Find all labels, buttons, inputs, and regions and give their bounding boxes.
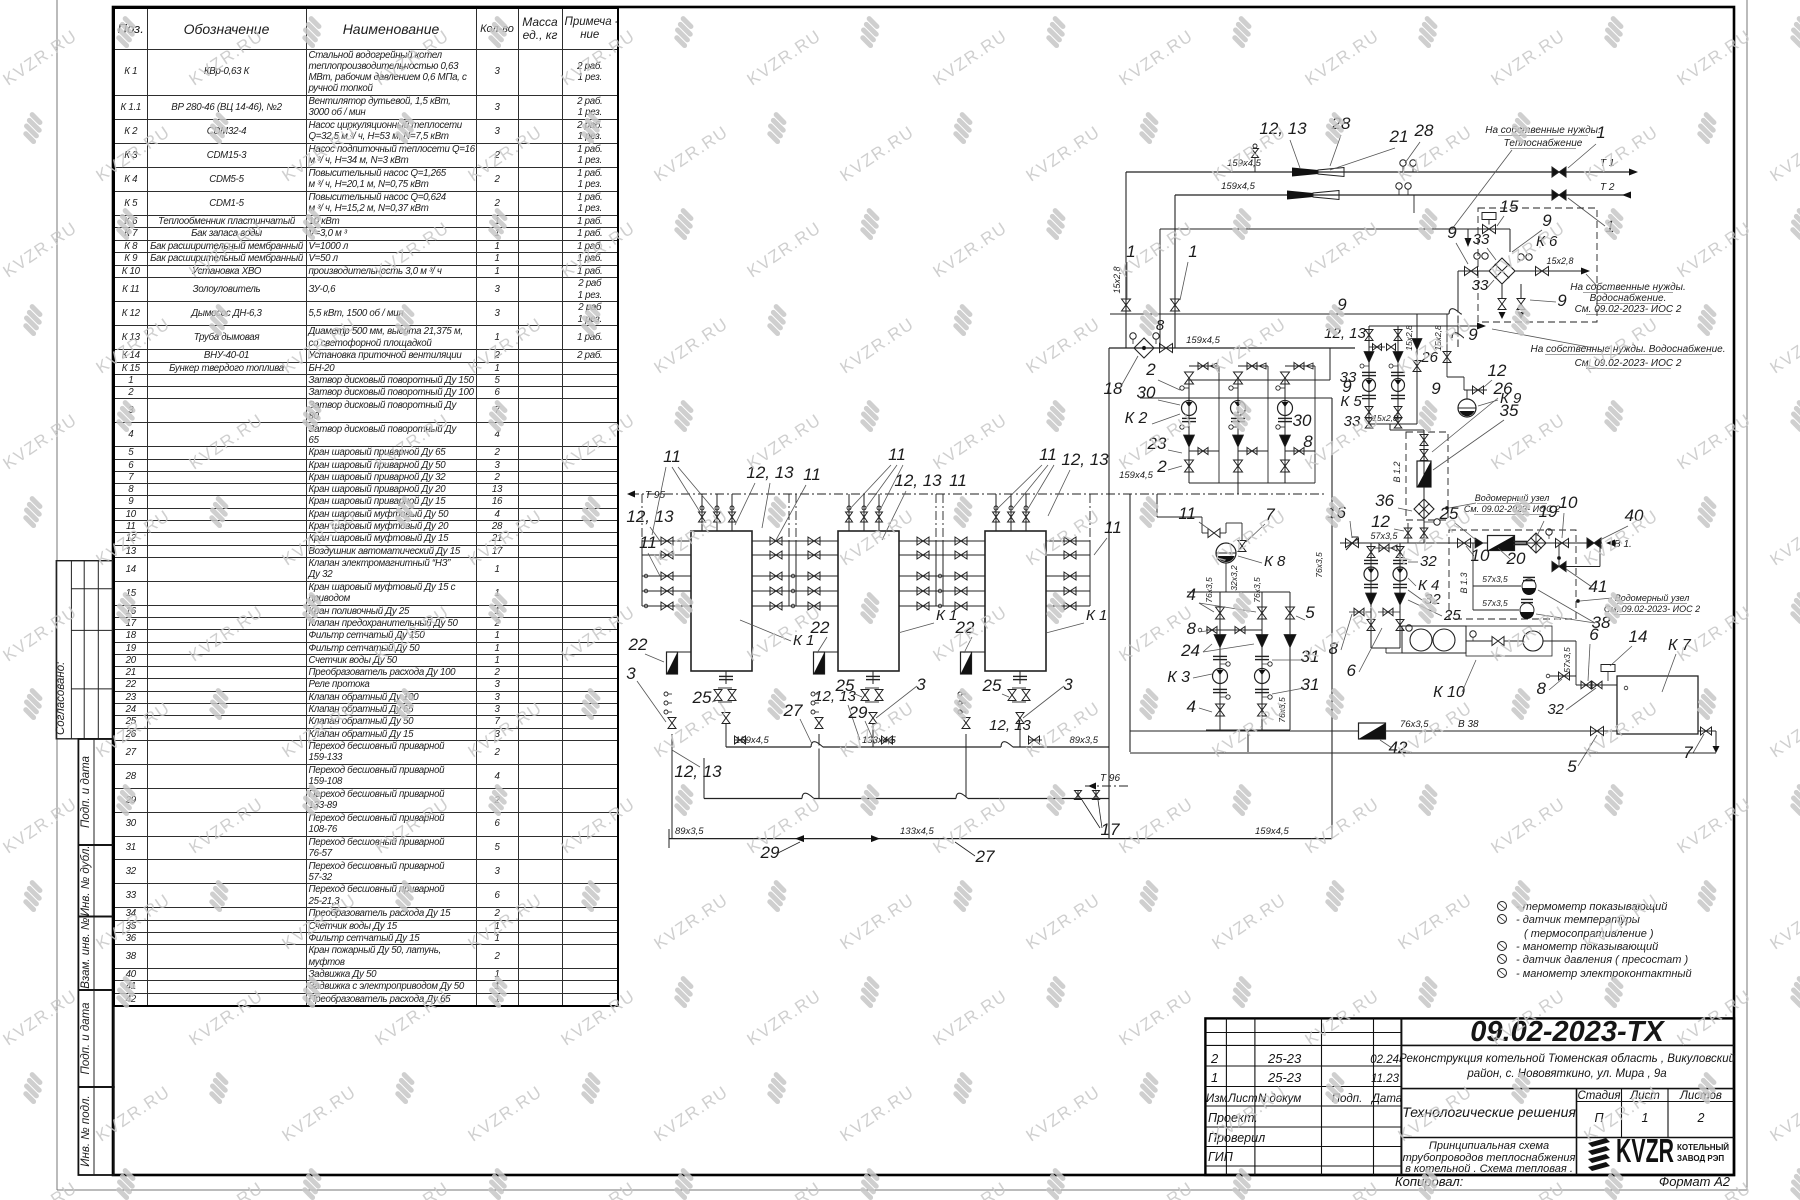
svg-text:2: 2 bbox=[1156, 457, 1167, 476]
svg-text:15х2,8: 15х2,8 bbox=[1112, 266, 1122, 293]
svg-text:Водоснабжение.: Водоснабжение. bbox=[1590, 292, 1667, 304]
svg-text:25: 25 bbox=[1443, 607, 1461, 624]
svg-text:9: 9 bbox=[1468, 325, 1478, 344]
svg-text:В 1.2: В 1.2 bbox=[1392, 461, 1402, 482]
svg-text:3: 3 bbox=[626, 664, 636, 683]
svg-text:9: 9 bbox=[1337, 295, 1347, 314]
svg-text:8: 8 bbox=[1329, 639, 1339, 658]
svg-text:14: 14 bbox=[1629, 627, 1648, 646]
svg-text:57х3,5: 57х3,5 bbox=[1482, 574, 1508, 584]
svg-text:22: 22 bbox=[955, 618, 975, 637]
svg-text:К 8: К 8 bbox=[1264, 553, 1286, 570]
svg-text:4: 4 bbox=[1187, 697, 1196, 716]
svg-text:- манометр электроконтактный: - манометр электроконтактный bbox=[1516, 968, 1692, 980]
svg-text:В 1.3: В 1.3 bbox=[1459, 572, 1469, 593]
svg-text:К 10: К 10 bbox=[1433, 684, 1465, 701]
svg-text:11: 11 bbox=[1104, 518, 1122, 537]
svg-text:12: 12 bbox=[1488, 361, 1507, 380]
svg-text:8: 8 bbox=[1303, 432, 1313, 451]
svg-text:32х3,2: 32х3,2 bbox=[1229, 565, 1239, 591]
svg-text:25: 25 bbox=[835, 676, 855, 695]
svg-text:6: 6 bbox=[1347, 661, 1357, 680]
svg-text:30: 30 bbox=[1137, 383, 1156, 402]
svg-text:9: 9 bbox=[1431, 379, 1441, 398]
svg-text:159х4,5: 159х4,5 bbox=[1119, 470, 1154, 481]
svg-text:- термометр показывающий: - термометр показывающий bbox=[1516, 901, 1667, 913]
svg-text:9: 9 bbox=[1557, 291, 1567, 310]
svg-text:29: 29 bbox=[848, 703, 868, 722]
svg-text:В 1.: В 1. bbox=[1614, 539, 1632, 550]
svg-text:24: 24 bbox=[1180, 641, 1200, 660]
svg-text:15х2,8: 15х2,8 bbox=[1546, 256, 1573, 266]
svg-text:159х4,5: 159х4,5 bbox=[1186, 335, 1221, 346]
svg-text:На собственные нужды.: На собственные нужды. bbox=[1570, 281, 1686, 293]
svg-text:15х2,8: 15х2,8 bbox=[1372, 413, 1398, 423]
svg-text:См. 09.02-2023- ИОС 2: См. 09.02-2023- ИОС 2 bbox=[1604, 604, 1700, 614]
svg-text:12, 13: 12, 13 bbox=[894, 471, 942, 490]
svg-text:11: 11 bbox=[949, 471, 967, 490]
svg-text:33: 33 bbox=[1344, 413, 1361, 430]
svg-text:32: 32 bbox=[1424, 591, 1441, 608]
svg-text:12, 13: 12, 13 bbox=[989, 717, 1031, 734]
svg-text:11: 11 bbox=[663, 447, 681, 466]
svg-text:33: 33 bbox=[1472, 277, 1489, 294]
svg-text:12, 13: 12, 13 bbox=[746, 463, 794, 482]
svg-text:1: 1 bbox=[1605, 217, 1614, 236]
svg-text:1: 1 bbox=[1126, 242, 1135, 261]
svg-text:15х2,8: 15х2,8 bbox=[1404, 325, 1414, 351]
svg-text:К 6: К 6 bbox=[1536, 233, 1558, 250]
svg-text:- датчик температуры: - датчик температуры bbox=[1516, 914, 1640, 926]
svg-text:К 1: К 1 bbox=[936, 607, 957, 624]
svg-text:76х3,5: 76х3,5 bbox=[1204, 577, 1214, 603]
svg-text:9: 9 bbox=[1542, 211, 1552, 230]
svg-text:40: 40 bbox=[1625, 506, 1644, 525]
svg-text:5: 5 bbox=[1305, 603, 1315, 622]
svg-text:11: 11 bbox=[1178, 504, 1196, 523]
svg-text:8: 8 bbox=[1537, 679, 1547, 698]
svg-text:Т 2: Т 2 bbox=[1600, 182, 1615, 193]
svg-text:5: 5 bbox=[1567, 757, 1577, 776]
svg-text:133х4,5: 133х4,5 bbox=[862, 735, 897, 746]
svg-text:- датчик давления ( пресоста: - датчик давления ( пресостат ) bbox=[1516, 954, 1689, 966]
svg-text:89х3,5: 89х3,5 bbox=[675, 826, 704, 837]
svg-text:К 7: К 7 bbox=[1668, 637, 1692, 654]
svg-text:2: 2 bbox=[1145, 360, 1156, 379]
svg-text:28: 28 bbox=[1414, 121, 1434, 140]
svg-text:89х3,5: 89х3,5 bbox=[1069, 735, 1098, 746]
svg-text:12, 13: 12, 13 bbox=[1324, 325, 1366, 342]
svg-text:21: 21 bbox=[1389, 127, 1409, 146]
svg-text:31: 31 bbox=[1301, 675, 1320, 694]
svg-text:28: 28 bbox=[1331, 114, 1351, 133]
svg-text:6: 6 bbox=[1589, 625, 1599, 644]
svg-text:30: 30 bbox=[1293, 411, 1312, 430]
svg-text:31: 31 bbox=[1301, 647, 1320, 666]
svg-text:159х4,5: 159х4,5 bbox=[735, 735, 770, 746]
svg-text:57х3,5: 57х3,5 bbox=[1370, 531, 1398, 541]
svg-text:12, 13: 12, 13 bbox=[1061, 450, 1109, 469]
svg-text:29: 29 bbox=[760, 843, 780, 862]
svg-text:35: 35 bbox=[1500, 401, 1519, 420]
svg-text:32: 32 bbox=[1420, 553, 1437, 570]
svg-text:76х3,5: 76х3,5 bbox=[1252, 577, 1262, 603]
svg-text:33: 33 bbox=[1473, 231, 1490, 248]
svg-text:19: 19 bbox=[1539, 502, 1558, 521]
svg-text:7: 7 bbox=[1265, 505, 1275, 524]
svg-text:- манометр показывающий: - манометр показывающий bbox=[1516, 941, 1658, 953]
svg-text:76х3,5: 76х3,5 bbox=[1314, 552, 1324, 578]
svg-text:( термосопративление ): ( термосопративление ) bbox=[1524, 928, 1654, 940]
svg-text:32: 32 bbox=[1547, 701, 1564, 718]
svg-text:159х4,5: 159х4,5 bbox=[1221, 181, 1256, 192]
svg-text:8: 8 bbox=[1156, 317, 1165, 334]
svg-text:15: 15 bbox=[1500, 197, 1519, 216]
svg-text:3: 3 bbox=[1063, 675, 1073, 694]
svg-text:1: 1 bbox=[1188, 242, 1197, 261]
svg-text:К 3: К 3 bbox=[1167, 669, 1190, 686]
svg-text:Т 95: Т 95 bbox=[645, 490, 665, 501]
svg-text:26: 26 bbox=[1420, 349, 1438, 366]
svg-text:159х4,5: 159х4,5 bbox=[1227, 158, 1262, 169]
svg-text:36: 36 bbox=[1375, 491, 1394, 510]
svg-text:11: 11 bbox=[639, 533, 657, 552]
svg-text:27: 27 bbox=[975, 847, 995, 866]
svg-text:4: 4 bbox=[1187, 585, 1196, 604]
svg-text:Т 96: Т 96 bbox=[1100, 773, 1120, 784]
svg-text:12, 13: 12, 13 bbox=[674, 762, 722, 781]
svg-text:25: 25 bbox=[1439, 504, 1459, 523]
svg-text:3: 3 bbox=[916, 675, 926, 694]
svg-text:На собственные нужды.: На собственные нужды. bbox=[1485, 124, 1601, 136]
svg-text:11: 11 bbox=[803, 465, 821, 484]
svg-text:17: 17 bbox=[1101, 820, 1120, 839]
svg-text:12, 13: 12, 13 bbox=[626, 507, 674, 526]
svg-text:11: 11 bbox=[888, 445, 906, 464]
svg-text:22: 22 bbox=[628, 635, 648, 654]
svg-text:133х4,5: 133х4,5 bbox=[900, 826, 935, 837]
svg-text:20: 20 bbox=[1506, 549, 1526, 568]
svg-text:См. 09.02-2023- ИОС 2: См. 09.02-2023- ИОС 2 bbox=[1575, 358, 1682, 369]
svg-text:9: 9 bbox=[1342, 377, 1352, 396]
svg-text:27: 27 bbox=[783, 701, 803, 720]
svg-text:См. 09.02-2023- ИОС 2: См. 09.02-2023- ИОС 2 bbox=[1575, 304, 1682, 315]
svg-text:23: 23 bbox=[1147, 434, 1167, 453]
svg-text:57х3,5: 57х3,5 bbox=[1562, 647, 1572, 673]
svg-text:15х2,8: 15х2,8 bbox=[1433, 325, 1443, 351]
svg-text:12: 12 bbox=[1371, 512, 1390, 531]
svg-text:Теплоснабжение: Теплоснабжение bbox=[1504, 137, 1583, 149]
svg-text:18: 18 bbox=[1104, 379, 1123, 398]
svg-text:159х4,5: 159х4,5 bbox=[1255, 826, 1290, 837]
svg-text:76х3,5: 76х3,5 bbox=[1277, 697, 1287, 723]
svg-text:Водомерный узел: Водомерный узел bbox=[1615, 593, 1690, 603]
svg-text:25: 25 bbox=[692, 688, 712, 707]
svg-text:К 1: К 1 bbox=[1086, 607, 1107, 624]
svg-text:Т 1: Т 1 bbox=[1600, 158, 1614, 169]
svg-text:22: 22 bbox=[810, 618, 830, 637]
svg-text:9: 9 bbox=[1447, 223, 1457, 242]
svg-text:11: 11 bbox=[1039, 445, 1057, 464]
svg-text:76х3,5: 76х3,5 bbox=[1400, 719, 1429, 730]
svg-text:16: 16 bbox=[1327, 503, 1346, 522]
svg-text:12, 13: 12, 13 bbox=[1259, 119, 1307, 138]
svg-text:10: 10 bbox=[1559, 493, 1578, 512]
svg-text:26: 26 bbox=[1493, 379, 1513, 398]
svg-text:На собственные нужды. Водосна: На собственные нужды. Водоснабжение. bbox=[1530, 343, 1725, 355]
svg-text:25: 25 bbox=[982, 676, 1002, 695]
svg-text:8: 8 bbox=[1187, 619, 1197, 638]
svg-text:К 2: К 2 bbox=[1125, 410, 1148, 427]
svg-text:В 38: В 38 bbox=[1458, 719, 1479, 730]
svg-text:57х3,5: 57х3,5 bbox=[1482, 598, 1508, 608]
